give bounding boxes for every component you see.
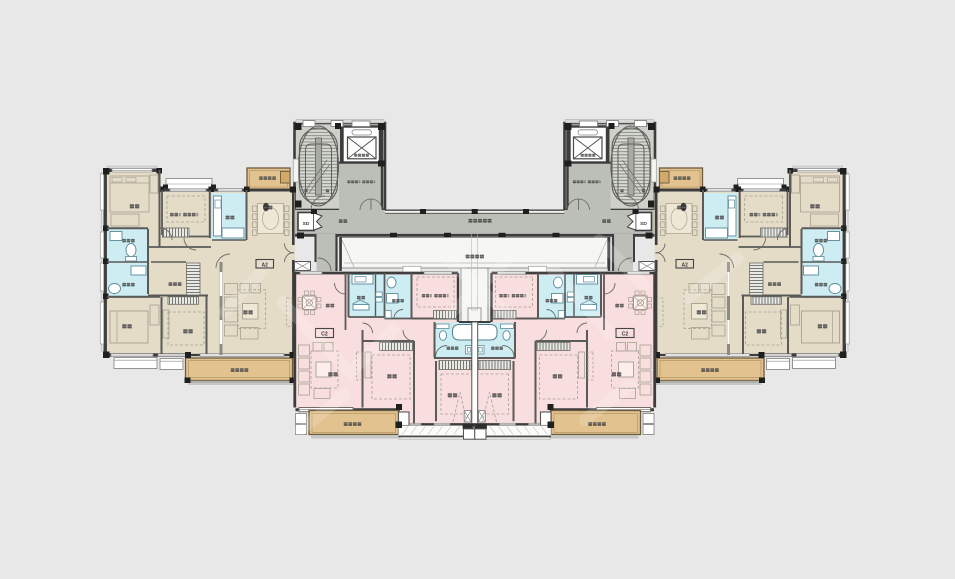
svg-text:A2: A2 xyxy=(262,263,269,269)
svg-text:C2: C2 xyxy=(321,332,328,338)
svg-text:SD: SD xyxy=(303,221,310,227)
svg-text:A2: A2 xyxy=(682,263,689,269)
svg-text:C2: C2 xyxy=(622,332,629,338)
svg-text:SD: SD xyxy=(640,221,647,227)
